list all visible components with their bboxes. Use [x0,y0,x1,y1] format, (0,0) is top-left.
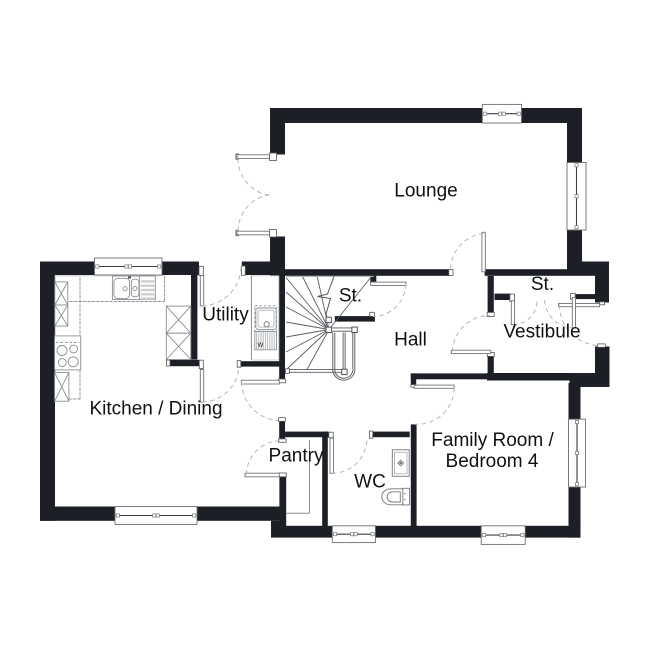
svg-text:WC: WC [354,472,386,493]
svg-text:Utility: Utility [202,305,249,326]
svg-text:Kitchen / Dining: Kitchen / Dining [89,399,222,420]
svg-text:w: w [257,340,264,349]
svg-text:Pantry: Pantry [269,446,324,467]
svg-text:St.: St. [531,274,554,295]
svg-text:Family Room /: Family Room / [431,430,554,451]
svg-text:Bedroom 4: Bedroom 4 [446,451,539,472]
svg-text:St.: St. [339,286,362,307]
svg-text:Hall: Hall [394,330,427,351]
svg-text:Lounge: Lounge [394,181,457,202]
svg-text:Vestibule: Vestibule [503,322,580,343]
